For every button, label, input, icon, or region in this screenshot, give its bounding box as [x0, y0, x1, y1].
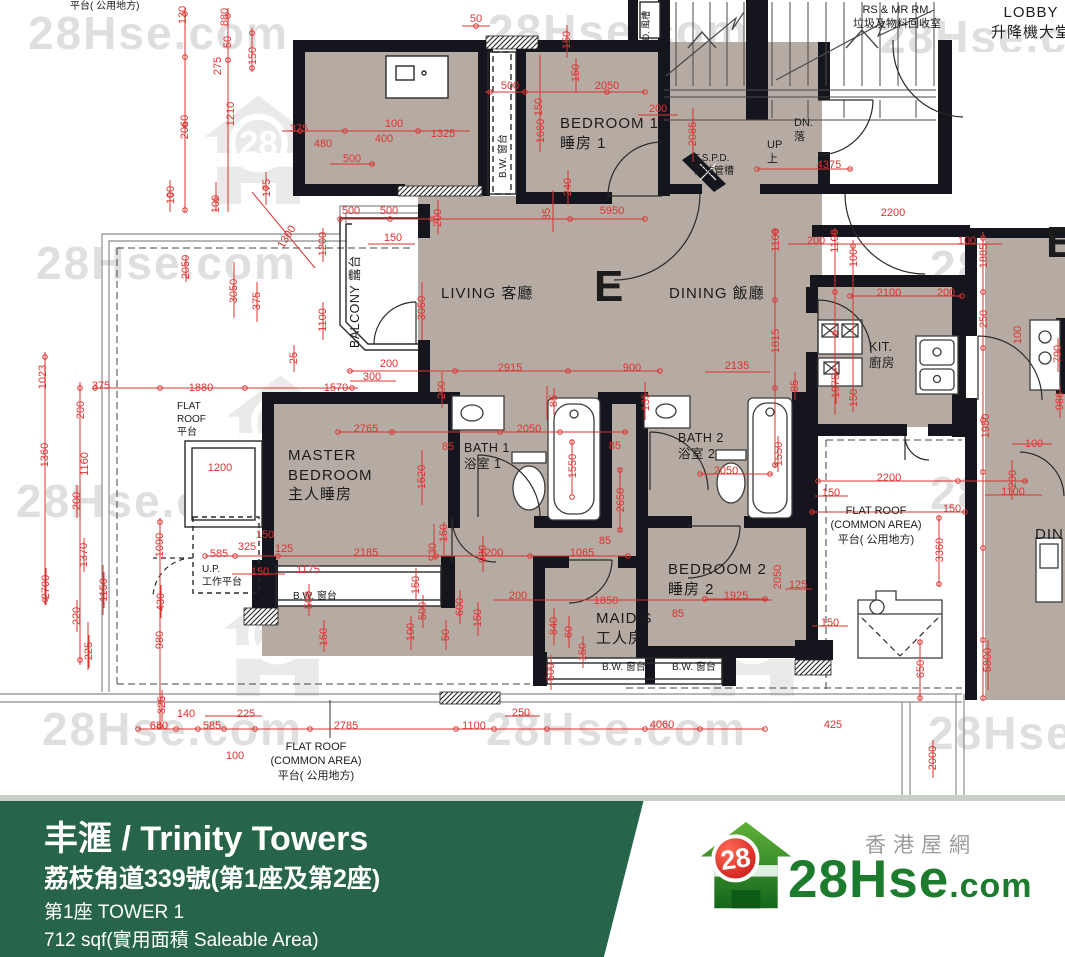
dimension-label: 100	[1025, 438, 1043, 450]
dimension-label: 500	[380, 205, 398, 217]
dimension-label: 2050	[595, 80, 619, 92]
dimension-label: 150	[256, 529, 274, 541]
dimension-label: 900	[623, 362, 641, 374]
dimension-label: 2050	[517, 423, 541, 435]
room-maids: MAID'S工人房	[596, 609, 652, 648]
dimension-label: 1880	[189, 382, 213, 394]
dimension-label: 50	[470, 13, 482, 25]
dimension-label: 85	[442, 441, 454, 453]
dimension-label: 150	[472, 609, 484, 627]
dimension-label: 1175	[296, 564, 320, 576]
dimension-label: 3050	[416, 296, 428, 320]
dimension-label: 325	[156, 696, 168, 714]
dimension-label: 2785	[334, 720, 358, 732]
dimension-label: 2135	[725, 360, 749, 372]
dimension-label: 2700	[40, 575, 52, 599]
dimension-label: 150	[438, 524, 450, 542]
dimension-label: 200	[1007, 470, 1019, 488]
dimension-label: 375	[251, 292, 263, 310]
dimension-label: 1360	[39, 443, 51, 467]
room-living: LIVING 客廳	[441, 284, 533, 304]
dimension-label: 200	[807, 235, 825, 247]
dimension-label: 2185	[354, 547, 378, 559]
room-bedroom1: BEDROOM 1睡房 1	[560, 114, 659, 153]
dimension-label: 250	[512, 707, 530, 719]
dimension-label: 430	[155, 593, 167, 611]
dimension-label: 200	[432, 209, 444, 227]
dimension-label: 840	[548, 617, 560, 635]
dimension-label: 2100	[877, 287, 901, 299]
dimension-label: 1100	[317, 308, 329, 332]
dimension-label: 250	[978, 310, 990, 328]
dimension-label: 1210	[225, 102, 237, 126]
dimension-label: 600	[454, 598, 466, 616]
dimension-label: 3050	[228, 279, 240, 303]
dimension-label: 200	[71, 492, 83, 510]
dimension-label: 85	[789, 380, 801, 392]
dimension-label: 150	[561, 31, 573, 49]
floor-plan-drawing	[0, 0, 1065, 795]
tower-label: 第1座 TOWER 1	[44, 897, 184, 924]
dimension-label: 200	[436, 381, 448, 399]
dimension-label: 200	[937, 287, 955, 299]
room-dining-adjacent: DINING	[1035, 525, 1065, 545]
dimension-label: 100	[210, 195, 222, 213]
dimension-label: 1150	[98, 578, 110, 602]
dimension-label: 680	[150, 720, 168, 732]
dimension-label: 500	[343, 153, 361, 165]
dimension-label: 500	[417, 602, 429, 620]
room-kitchen: KIT.廚房	[869, 339, 895, 372]
svg-text:28: 28	[719, 842, 753, 876]
dimension-label: 100	[405, 623, 417, 641]
dimension-label: 585	[210, 548, 228, 560]
dimension-label: 85	[609, 440, 621, 452]
dimension-label: 60	[563, 626, 575, 638]
dimension-label: 1023	[37, 365, 49, 389]
dimension-label: 2200	[877, 472, 901, 484]
dimension-label: 225	[83, 642, 95, 660]
room-lobby: LOBBY升降機大堂	[991, 3, 1065, 42]
dimension-label: 125	[275, 543, 293, 555]
floorplan-page: 28Hse.com28Hse.com28Hse.com28Hse.com28Hs…	[0, 0, 1065, 957]
dimension-label: 1950	[980, 414, 992, 438]
dimension-label: 50	[440, 629, 452, 641]
development-address: 荔枝角道339號(第1座及第2座)	[44, 859, 380, 895]
dimension-label: 3360	[934, 538, 946, 562]
dimension-label: 500	[342, 205, 360, 217]
stair-up: UP上	[767, 138, 782, 167]
dimension-label: 986	[1054, 392, 1065, 410]
dimension-label: 425	[824, 719, 842, 731]
dimension-label: 150	[570, 64, 582, 82]
room-rs-mr: RS & MR RM.垃圾及物料回收室	[853, 3, 941, 32]
dimension-label: 135	[640, 393, 652, 411]
dimension-label: 1090	[154, 533, 166, 557]
dimension-label: 1925	[724, 590, 748, 602]
dimension-label: 1885	[978, 244, 990, 268]
dimension-label: 1660	[535, 119, 547, 143]
dimension-label: 650	[915, 660, 927, 678]
unit-letter-adjacent: E	[1046, 218, 1065, 268]
dimension-label: 220	[71, 607, 83, 625]
dimension-label: 100	[1012, 326, 1024, 344]
dimension-label: 85	[672, 608, 684, 620]
dimension-label: 4060	[650, 719, 674, 731]
dimension-label: 85	[599, 535, 611, 547]
label-fspd: F.S.P.D.消防管槽	[694, 152, 734, 178]
room-balcony: BALCONY 露台	[347, 255, 363, 348]
label-bw-vertical: B.W. 窗台	[497, 134, 510, 178]
dimension-label: 150	[533, 98, 545, 116]
dimension-label: 1100	[829, 229, 841, 253]
dimension-label: 150	[577, 643, 589, 661]
floor-plan-area: 28Hse.com28Hse.com28Hse.com28Hse.com28Hs…	[0, 0, 1065, 795]
dimension-label: 1065	[570, 547, 594, 559]
room-dining: DINING 飯廳	[669, 284, 765, 304]
dimension-label: 1200	[317, 232, 329, 256]
dimension-label: 1570	[324, 382, 348, 394]
room-bath1: BATH 1浴室 1	[464, 440, 510, 473]
dimension-label: 1325	[431, 128, 455, 140]
dimension-label: 150	[822, 487, 840, 499]
dimension-label: 200	[75, 401, 87, 419]
dimension-label: 500	[545, 663, 557, 681]
area-label: 712 sqf(實用面積 Saleable Area)	[44, 925, 319, 952]
label-flat-roof-common-top: 平台( 公用地方)	[70, 0, 139, 13]
dimension-label: 225	[237, 708, 255, 720]
dimension-label: 790	[1052, 345, 1064, 363]
dimension-label: 1100	[462, 720, 486, 732]
label-vd: V.D. 風槽	[641, 11, 653, 48]
dimension-label: 1520	[416, 465, 428, 489]
dimension-label: 500	[303, 591, 315, 609]
dimension-label: 50	[222, 36, 234, 48]
dimension-label: 1815	[770, 329, 782, 353]
dimension-label: 5950	[600, 205, 624, 217]
unit-letter: E	[594, 262, 623, 312]
dimension-label: 5800	[982, 648, 994, 672]
dimension-label: 100	[165, 186, 177, 204]
dimension-label: 100	[958, 235, 976, 247]
room-up-platform: U.P.工作平台	[202, 563, 242, 589]
dimension-label: 480	[314, 138, 332, 150]
dimension-label: 325	[238, 541, 256, 553]
dimension-label: 1550	[773, 442, 785, 466]
dimension-label: 150	[384, 232, 402, 244]
dimension-label: 100	[226, 750, 244, 762]
dimension-label: 2915	[498, 362, 522, 374]
dimension-label: 1550	[567, 454, 579, 478]
dimension-label: 980	[154, 631, 166, 649]
dimension-label: 100	[385, 118, 403, 130]
development-title: 丰滙 / Trinity Towers	[44, 811, 368, 860]
dimension-label: 150	[848, 389, 860, 407]
dimension-label: 2650	[615, 488, 627, 512]
dimension-label: 375	[92, 380, 110, 392]
dimension-label: 1370	[78, 543, 90, 567]
label-bw-maids: B.W. 窗台	[602, 661, 646, 674]
dimension-label: 880	[219, 8, 231, 26]
dimension-label: 150	[821, 617, 839, 629]
room-master-bedroom: MASTERBEDROOM主人睡房	[288, 446, 373, 505]
dimension-label: 200	[380, 358, 398, 370]
dimension-label: 85	[548, 395, 560, 407]
property-info-panel: 丰滙 / Trinity Towers 荔枝角道339號(第1座及第2座) 第1…	[0, 801, 660, 957]
dimension-label: 150	[251, 566, 269, 578]
dimension-label: 930	[477, 545, 489, 563]
dimension-label: 1200	[208, 462, 232, 474]
dimension-label: 25	[288, 352, 300, 364]
dimension-label: 2050	[772, 565, 784, 589]
dimension-label: 500	[501, 80, 519, 92]
logo-text: 28Hse.com	[788, 853, 1033, 906]
dimension-label: 400	[375, 133, 393, 145]
label-bw-bedroom2: B.W. 窗台	[672, 661, 716, 674]
logo-house-icon: 28	[698, 819, 794, 920]
dimension-label: 375	[290, 123, 308, 135]
dimension-label: 300	[363, 371, 381, 383]
dimension-label: 1975	[830, 374, 842, 398]
dimension-label: 150	[247, 47, 259, 65]
dimension-label: 275	[212, 57, 224, 75]
stair-dn: DN.落	[794, 116, 813, 145]
dimension-label: 1160	[79, 452, 91, 476]
dimension-label: 4375	[817, 159, 841, 171]
dimension-label: 175	[261, 179, 273, 197]
room-bedroom2: BEDROOM 2睡房 2	[668, 560, 767, 599]
dimension-label: 150	[943, 503, 961, 515]
dimension-label: 2765	[354, 423, 378, 435]
dimension-label: 1850	[594, 595, 618, 607]
dimension-label: 240	[562, 178, 574, 196]
footer-banner: 丰滙 / Trinity Towers 荔枝角道339號(第1座及第2座) 第1…	[0, 801, 1065, 957]
dimension-label: 2060	[179, 115, 191, 139]
site-logo[interactable]: 香港屋網 28	[660, 801, 1065, 957]
room-bath2: BATH 2浴室 2	[678, 430, 724, 463]
dimension-label: 585	[203, 720, 221, 732]
dimension-label: 2200	[881, 207, 905, 219]
dimension-label: 150	[318, 628, 330, 646]
dimension-label: 2050	[180, 255, 192, 279]
dimension-label: 130	[177, 6, 189, 24]
dimension-label: 930	[427, 543, 439, 561]
dimension-label: 2000	[927, 746, 939, 770]
dimension-label: 85	[541, 208, 553, 220]
dimension-label: 200	[509, 590, 527, 602]
dimension-label: 125	[789, 579, 807, 591]
dimension-label: 200	[649, 103, 667, 115]
dimension-label: 100	[848, 249, 860, 267]
dimension-label: 150	[410, 576, 422, 594]
room-flat-roof-right: FLAT ROOF(COMMON AREA)平台( 公用地方)	[830, 504, 921, 547]
dimension-label: 2050	[714, 465, 738, 477]
dimension-label: 140	[177, 708, 195, 720]
dimension-label: 2085	[687, 122, 699, 146]
room-flat-roof-left: FLATROOF平台	[177, 400, 206, 439]
dimension-label: 1100	[770, 228, 782, 252]
room-flat-roof-bottom: FLAT ROOF(COMMON AREA)平台( 公用地方)	[270, 740, 361, 783]
